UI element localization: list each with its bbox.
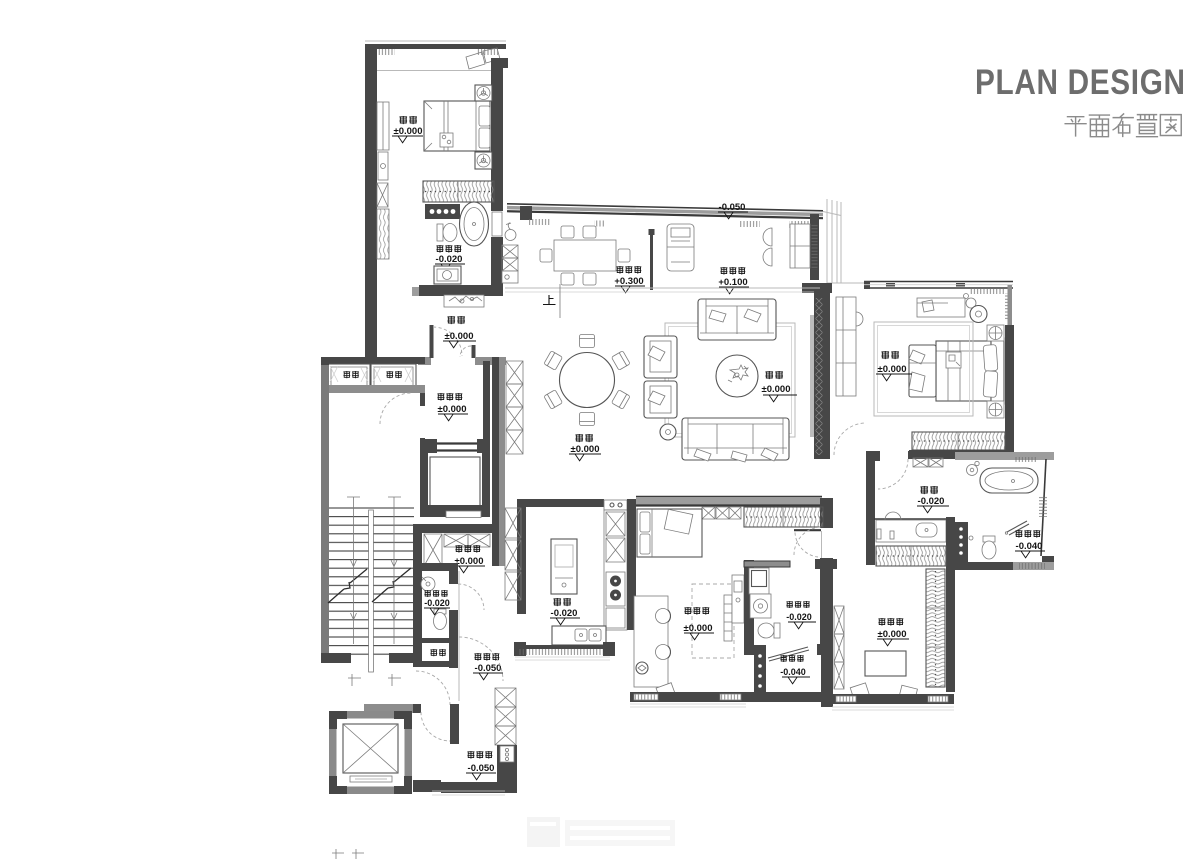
svg-text:±0.000: ±0.000 [684,623,713,634]
svg-text:-0.050: -0.050 [468,763,495,774]
svg-text:±0.000: ±0.000 [394,126,423,137]
svg-text:-0.020: -0.020 [786,612,812,622]
svg-text:±0.000: ±0.000 [878,364,907,375]
svg-text:+0.300: +0.300 [614,276,643,287]
svg-text:-0.020: -0.020 [551,608,578,619]
svg-text:±0.000: ±0.000 [455,556,484,567]
svg-text:-0.020: -0.020 [918,496,945,507]
svg-text:-0.050: -0.050 [719,202,746,213]
svg-text:-0.040: -0.040 [780,667,806,677]
svg-text:PLAN DESIGN: PLAN DESIGN [975,63,1186,102]
svg-text:±0.000: ±0.000 [571,444,600,455]
svg-text:±0.000: ±0.000 [762,384,791,395]
svg-text:-0.020: -0.020 [424,598,450,608]
svg-text:+0.100: +0.100 [718,277,747,288]
svg-text:-0.050: -0.050 [475,663,502,674]
svg-text:±0.000: ±0.000 [878,629,907,640]
svg-text:-0.020: -0.020 [436,254,463,265]
svg-text:-0.040: -0.040 [1016,541,1043,552]
svg-text:±0.000: ±0.000 [445,331,474,342]
svg-text:±0.000: ±0.000 [438,404,467,415]
